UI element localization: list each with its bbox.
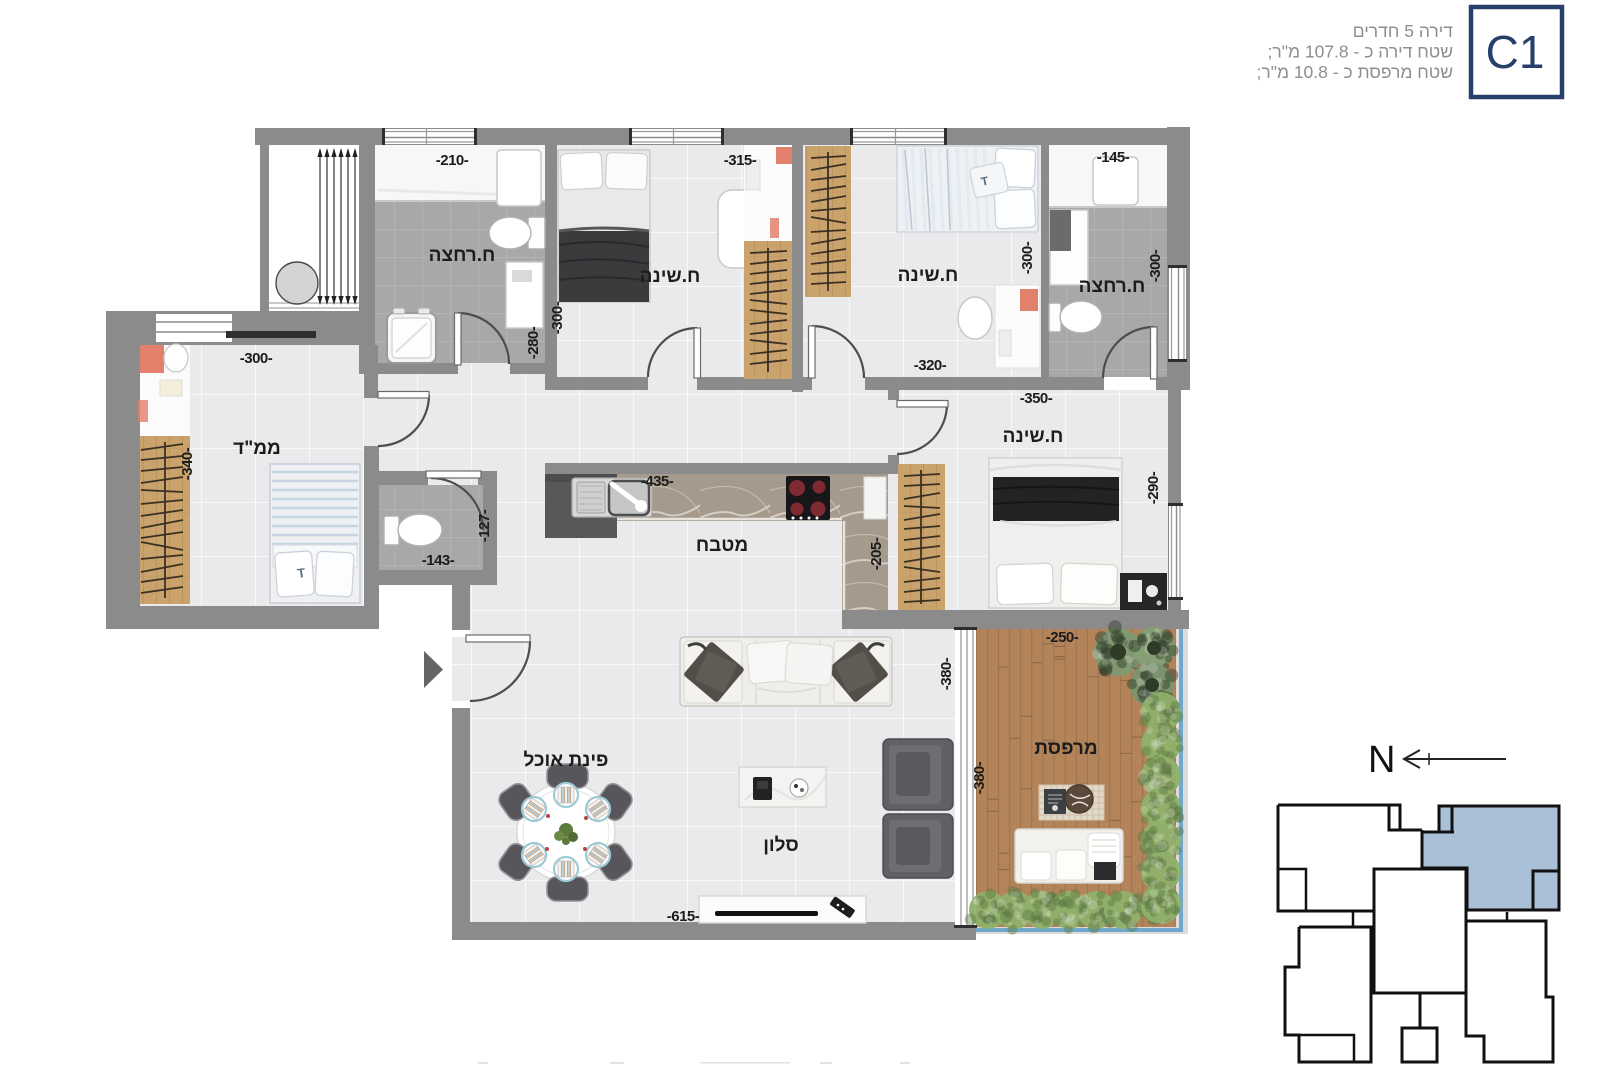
svg-text:-380-: -380-: [971, 761, 988, 794]
svg-text:ח.שינה: ח.שינה: [898, 265, 959, 286]
svg-text:-205-: -205-: [868, 537, 885, 570]
svg-text:-615-: -615-: [667, 908, 700, 925]
svg-text:-315-: -315-: [724, 152, 757, 169]
svg-text:ממ"ד: ממ"ד: [233, 438, 281, 459]
svg-text:מרפסת: מרפסת: [1034, 738, 1097, 759]
svg-text:ח.שינה: ח.שינה: [640, 266, 701, 287]
svg-text:פינת אוכל: פינת אוכל: [524, 750, 609, 771]
svg-text:-380-: -380-: [938, 657, 955, 690]
svg-text:-290-: -290-: [1145, 471, 1162, 504]
svg-text:-280-: -280-: [525, 326, 542, 359]
svg-text:-350-: -350-: [1020, 390, 1053, 407]
svg-text:-320-: -320-: [914, 357, 947, 374]
svg-text:מטבח: מטבח: [696, 535, 748, 556]
svg-text:ח.רחצה: ח.רחצה: [429, 245, 496, 266]
svg-text:דירה 5 חדרים: דירה 5 חדרים: [1353, 21, 1454, 41]
svg-text:C1: C1: [1486, 26, 1545, 78]
svg-text:שטח דירה כ - 107.8 מ"ר;: שטח דירה כ - 107.8 מ"ר;: [1268, 42, 1454, 62]
svg-text:-143-: -143-: [422, 552, 455, 569]
svg-text:-145-: -145-: [1097, 149, 1130, 166]
svg-text:-435-: -435-: [641, 473, 674, 490]
svg-text:-300-: -300-: [1019, 241, 1036, 274]
svg-text:-300-: -300-: [1147, 249, 1164, 282]
svg-text:-300-: -300-: [549, 301, 566, 334]
svg-text:N: N: [1368, 739, 1395, 781]
svg-text:סלון: סלון: [763, 835, 799, 856]
svg-text:-127-: -127-: [476, 509, 493, 542]
svg-text:ח.רחצה: ח.רחצה: [1079, 276, 1146, 297]
svg-text:-210-: -210-: [436, 152, 469, 169]
svg-text:שטח מרפסת כ - 10.8 מ"ר;: שטח מרפסת כ - 10.8 מ"ר;: [1257, 62, 1454, 82]
svg-text:-340-: -340-: [179, 447, 196, 480]
svg-text:-300-: -300-: [240, 350, 273, 367]
svg-text:-250-: -250-: [1046, 629, 1079, 646]
svg-text:ח.שינה: ח.שינה: [1003, 426, 1064, 447]
